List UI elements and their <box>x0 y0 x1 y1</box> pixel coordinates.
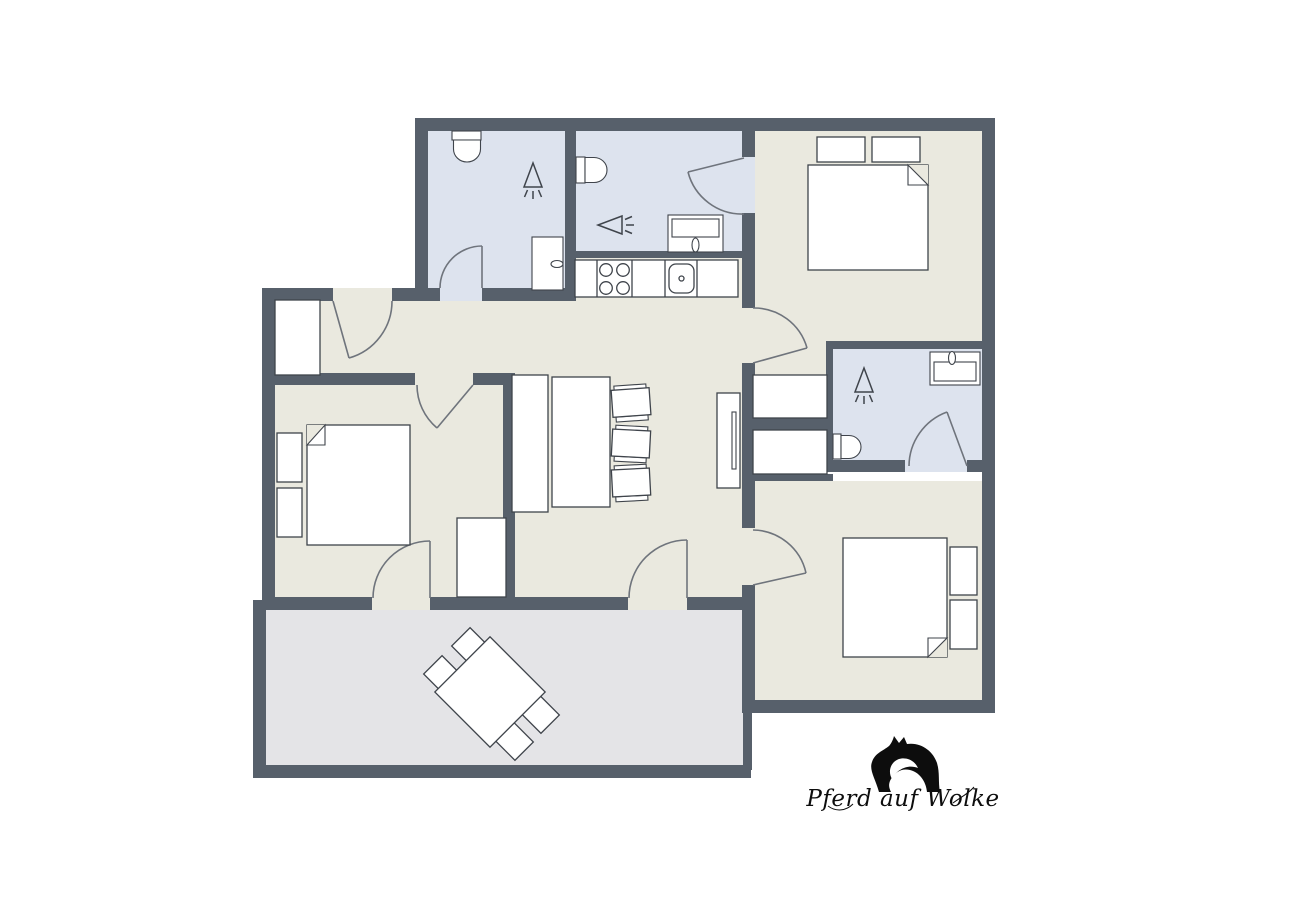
wall-segment <box>430 597 628 610</box>
doorway-bathroom-kitchen-side <box>742 157 755 213</box>
wall-terrace-left <box>253 600 266 778</box>
doorway-bathroom-top-left <box>440 288 482 301</box>
pillow <box>872 137 920 162</box>
floor-plan-canvas: Pferd auf Wolke <box>0 0 1300 900</box>
wall-segment <box>415 118 428 301</box>
double-bed <box>307 425 410 545</box>
pillow <box>277 488 302 537</box>
washbasin <box>668 215 723 252</box>
wall-segment <box>832 460 905 472</box>
wall-segment <box>742 213 755 308</box>
tv-sideboard <box>717 393 740 488</box>
wall-terrace-right <box>743 710 752 770</box>
wall-segment <box>262 288 275 610</box>
doorway-bedroom-bottom-right <box>742 528 755 585</box>
brand-logo: Pferd auf Wolke <box>805 736 999 812</box>
wall-segment <box>415 288 440 301</box>
wall-segment <box>565 118 576 301</box>
floor-hallway-living <box>275 297 742 373</box>
wall-segment <box>687 597 755 610</box>
wall-segment <box>415 118 995 131</box>
washbasin <box>930 352 980 386</box>
wall-partition <box>753 474 833 481</box>
pillow <box>277 433 302 482</box>
wall-segment <box>742 700 995 713</box>
pillow <box>950 600 977 649</box>
wall-segment <box>262 597 372 610</box>
double-bed <box>808 165 928 270</box>
doorway-entrance <box>333 288 392 301</box>
toilet <box>833 434 861 459</box>
bench <box>512 375 548 512</box>
wall-segment <box>742 131 755 157</box>
double-bed <box>843 538 947 657</box>
wall-terrace-bottom <box>253 765 751 778</box>
doorway-living-terrace <box>628 597 687 610</box>
wall-partition <box>826 341 982 349</box>
tv-screen <box>732 412 736 469</box>
dining-table <box>552 377 610 507</box>
wall-segment <box>967 460 982 472</box>
chair <box>611 425 651 463</box>
wall-segment <box>742 480 755 528</box>
wardrobe <box>753 430 827 474</box>
tall-cabinet <box>532 237 563 290</box>
doorway-bathroom-middle-right <box>905 460 967 472</box>
pillow <box>950 547 977 595</box>
chair <box>611 464 651 502</box>
floor-plan-drawing: Pferd auf Wolke <box>0 0 1300 900</box>
wardrobe <box>457 518 506 597</box>
doorway-bedroom-left-terrace <box>372 597 430 610</box>
wall-wardrobe-divider <box>753 418 827 430</box>
chair <box>611 384 651 423</box>
wall-segment <box>982 118 995 713</box>
kitchen-counter <box>575 260 738 297</box>
wardrobe <box>753 375 827 418</box>
doorway-bedroom-left <box>415 373 473 385</box>
toilet <box>452 131 481 162</box>
pillow <box>817 137 865 162</box>
doorway-bedroom-top-right <box>742 308 755 363</box>
hallway-wardrobe <box>275 300 320 375</box>
toilet <box>576 157 607 183</box>
